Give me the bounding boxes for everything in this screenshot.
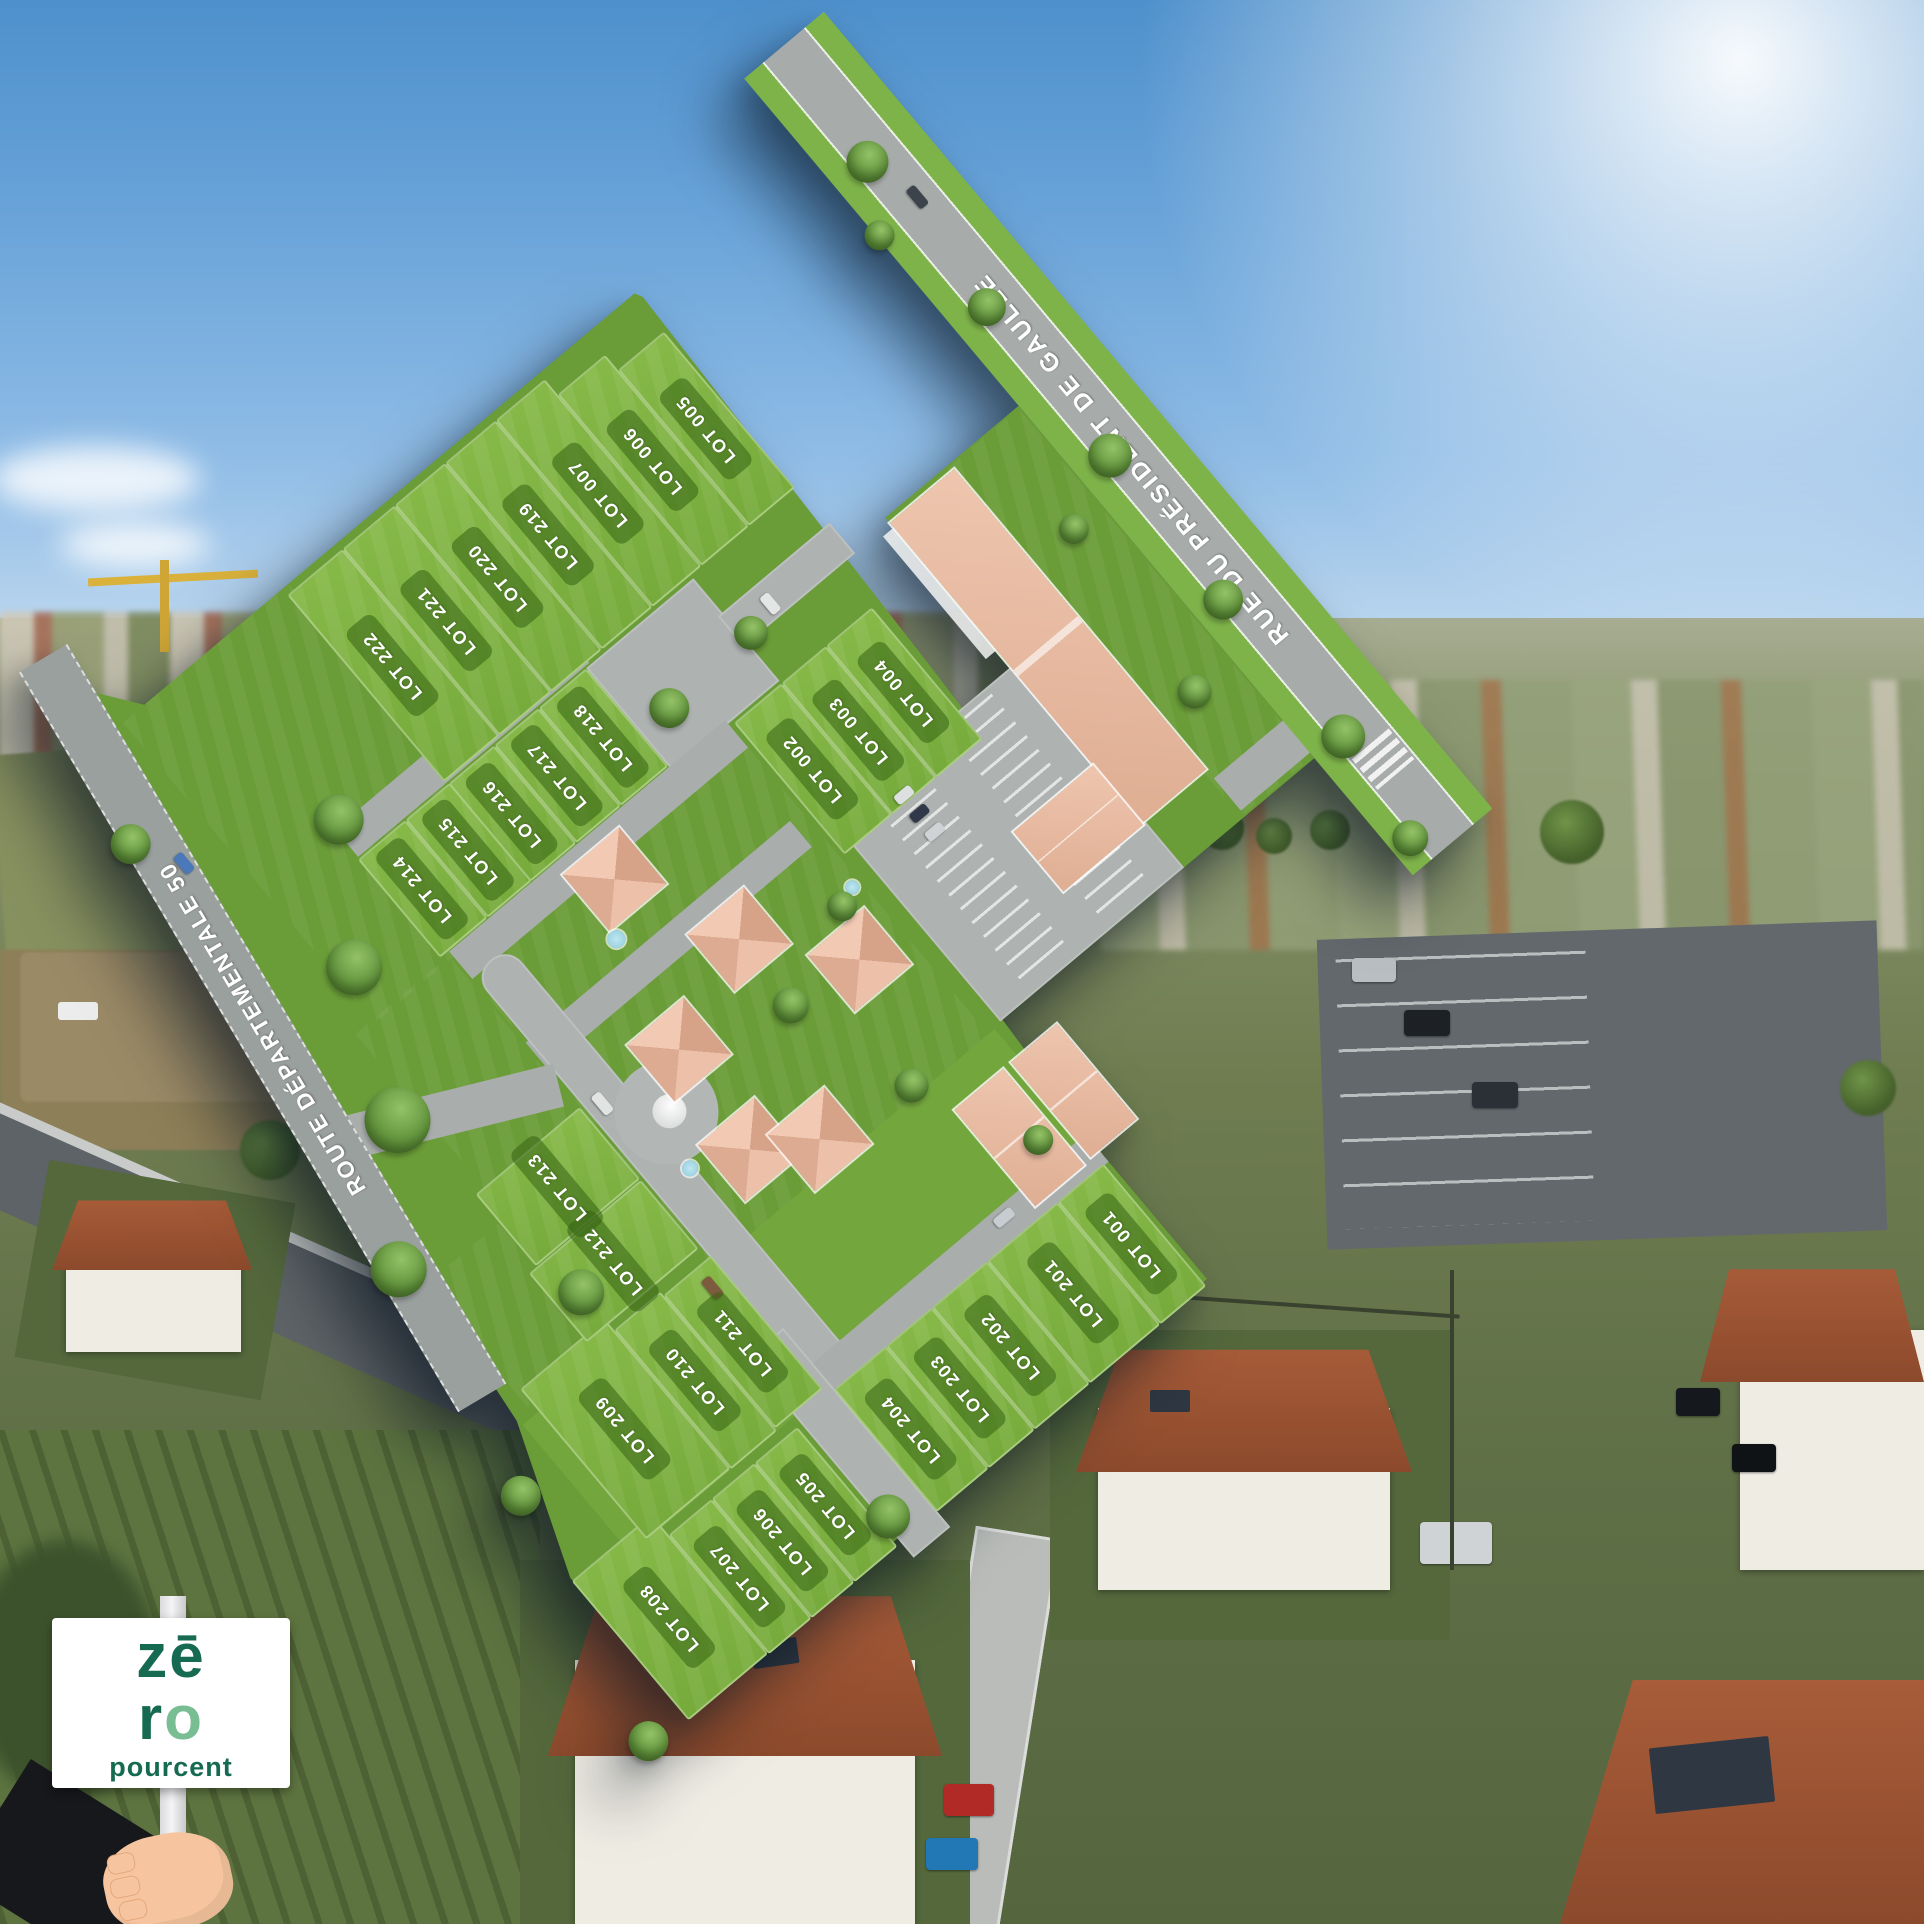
house <box>767 1087 871 1191</box>
tree <box>1312 706 1374 768</box>
tree <box>1171 668 1219 716</box>
tree <box>303 784 373 854</box>
tree <box>315 928 394 1007</box>
logo-sign: zē ro pourcent <box>52 1618 290 1788</box>
logo-word: pourcent <box>109 1754 233 1781</box>
house <box>807 908 911 1012</box>
car <box>924 821 946 842</box>
car <box>908 803 930 824</box>
tree <box>888 1062 936 1110</box>
pool <box>679 1157 702 1180</box>
tree <box>1017 1119 1059 1161</box>
tree <box>359 1230 438 1309</box>
house <box>687 887 791 991</box>
tree <box>641 680 697 736</box>
tree <box>1195 571 1251 627</box>
tree <box>858 214 900 256</box>
tree <box>493 1468 549 1524</box>
car <box>992 1206 1016 1229</box>
tree <box>351 1074 444 1167</box>
tree <box>960 280 1014 334</box>
aerial-masterplan-image: ROUTE DÉPARTEMENTALE 50 RUE DU PRÉSIDENT… <box>0 0 1924 1924</box>
tree <box>1385 813 1436 864</box>
car <box>590 1091 614 1116</box>
pool <box>604 926 629 951</box>
car <box>905 184 929 209</box>
tree <box>1079 425 1141 487</box>
tree <box>620 1713 676 1769</box>
logo-line2: ro <box>138 1688 204 1750</box>
car <box>759 592 782 616</box>
tree <box>727 609 775 657</box>
car <box>173 851 196 875</box>
tree <box>1053 508 1095 550</box>
site-plan: ROUTE DÉPARTEMENTALE 50 RUE DU PRÉSIDENT… <box>0 0 1633 1783</box>
logo-line1: zē <box>136 1626 205 1688</box>
finger <box>117 1897 149 1922</box>
tree <box>838 132 897 191</box>
tree <box>102 816 158 872</box>
house <box>627 998 731 1102</box>
car <box>893 784 915 805</box>
finger <box>108 1874 142 1900</box>
house <box>562 827 666 931</box>
tree <box>765 980 816 1031</box>
